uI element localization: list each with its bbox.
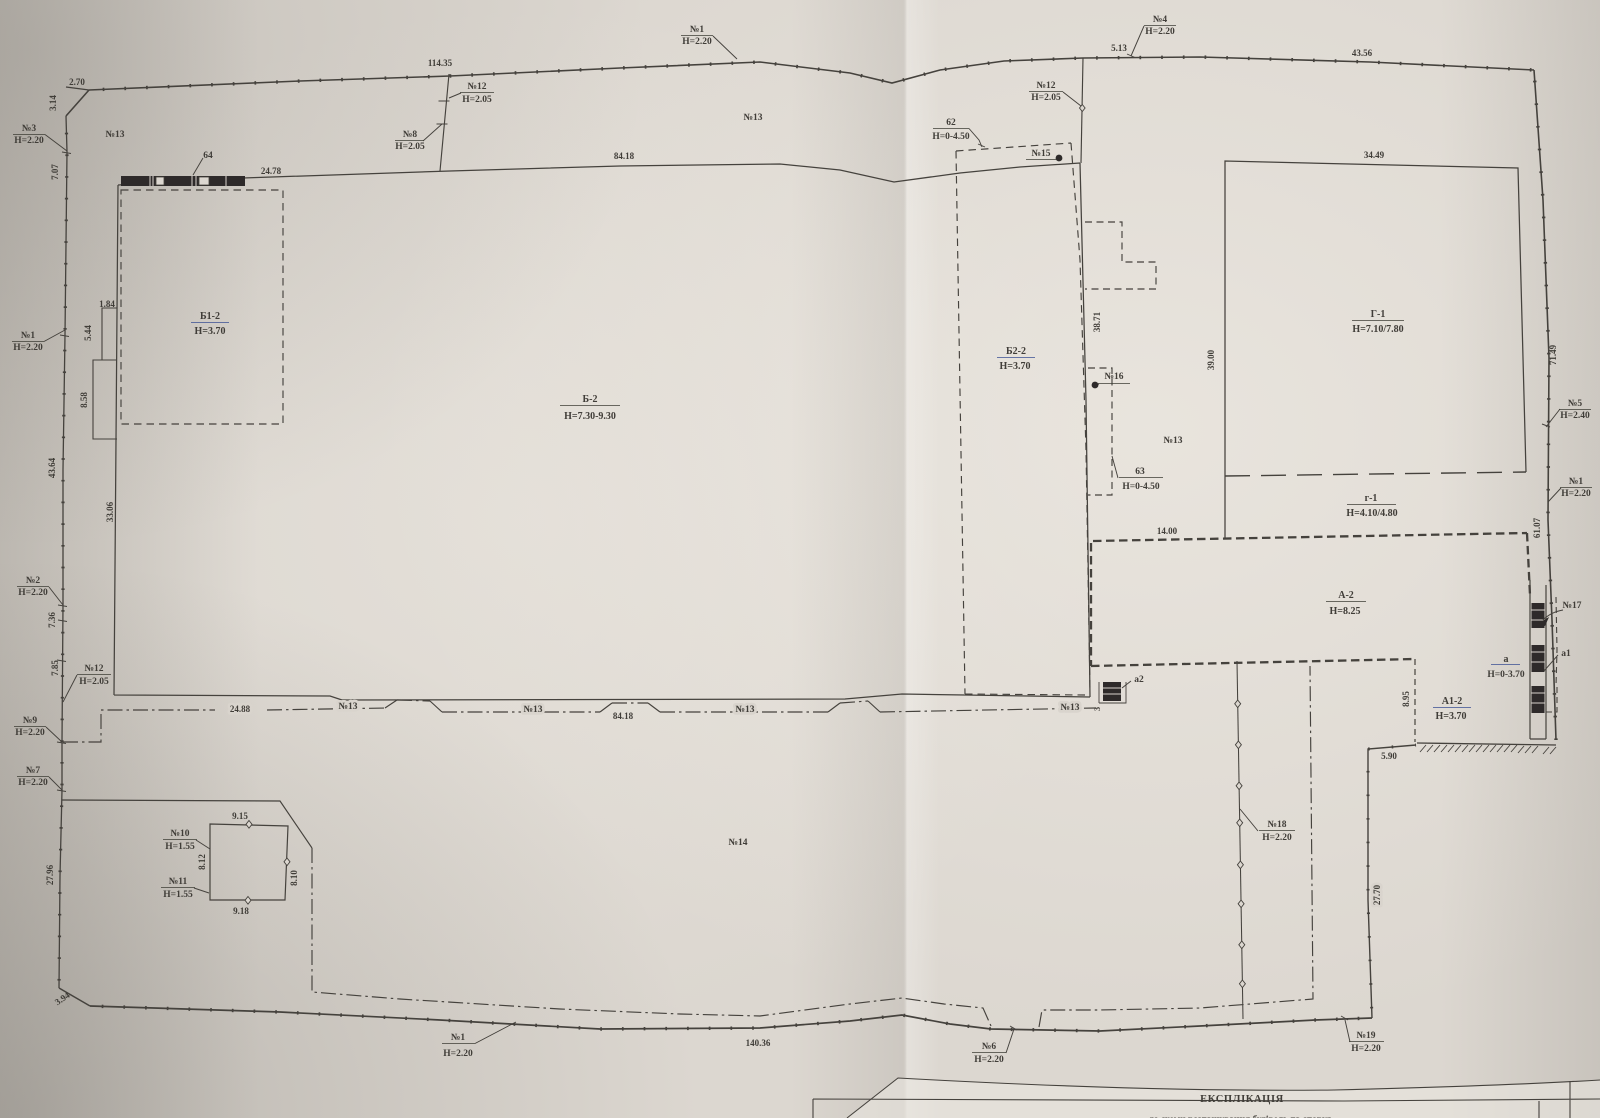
svg-text:№16: №16 <box>1104 372 1123 382</box>
svg-text:Н=2.05: Н=2.05 <box>1031 93 1061 103</box>
svg-text:№12: №12 <box>84 664 103 674</box>
svg-text:Н=2.05: Н=2.05 <box>79 677 109 687</box>
svg-text:Н=2.20: Н=2.20 <box>18 778 48 788</box>
svg-text:5.44: 5.44 <box>83 325 93 341</box>
svg-text:61.07: 61.07 <box>1532 517 1542 538</box>
svg-text:Н=3.70: Н=3.70 <box>1000 361 1031 372</box>
svg-text:Н=2.20: Н=2.20 <box>443 1049 473 1059</box>
svg-text:№1: №1 <box>1569 477 1584 487</box>
svg-text:А1-2: А1-2 <box>1442 696 1463 707</box>
svg-text:9.18: 9.18 <box>233 906 249 916</box>
svg-text:№4: №4 <box>1153 15 1168 25</box>
svg-text:5.13: 5.13 <box>1111 43 1127 53</box>
svg-text:№1: №1 <box>690 25 705 35</box>
svg-text:114.35: 114.35 <box>428 58 453 68</box>
svg-text:1.84: 1.84 <box>99 299 115 309</box>
svg-text:№10: №10 <box>170 829 189 839</box>
svg-text:№14: №14 <box>728 838 747 848</box>
svg-text:№13: №13 <box>1163 436 1182 446</box>
svg-text:Н=8.25: Н=8.25 <box>1330 606 1361 617</box>
svg-text:Б2-2: Б2-2 <box>1006 346 1026 357</box>
svg-text:84.18: 84.18 <box>613 711 634 721</box>
svg-text:7.07: 7.07 <box>50 164 60 180</box>
svg-text:43.56: 43.56 <box>1352 48 1373 58</box>
svg-text:Н=0-3.70: Н=0-3.70 <box>1487 670 1525 680</box>
svg-text:Н=2.20: Н=2.20 <box>18 588 48 598</box>
svg-text:А-2: А-2 <box>1338 590 1354 601</box>
svg-text:№13: №13 <box>735 705 754 715</box>
svg-text:а2: а2 <box>1134 675 1144 685</box>
svg-text:а1: а1 <box>1561 649 1571 659</box>
svg-text:Н=2.20: Н=2.20 <box>974 1055 1004 1065</box>
svg-text:43.64: 43.64 <box>47 457 57 478</box>
svg-text:38.71: 38.71 <box>1092 311 1102 332</box>
svg-text:Н=2.20: Н=2.20 <box>1351 1044 1381 1054</box>
svg-text:27.96: 27.96 <box>45 864 55 885</box>
svg-text:Б1-2: Б1-2 <box>200 311 220 322</box>
svg-text:Н=2.05: Н=2.05 <box>395 142 425 152</box>
svg-text:Н=2.40: Н=2.40 <box>1560 411 1590 421</box>
svg-text:ЕКСПЛІКАЦІЯ: ЕКСПЛІКАЦІЯ <box>1200 1094 1284 1105</box>
svg-text:№19: №19 <box>1356 1031 1375 1041</box>
svg-text:№12: №12 <box>1036 81 1055 91</box>
svg-text:№13: №13 <box>105 130 124 140</box>
svg-text:24.78: 24.78 <box>261 166 282 176</box>
svg-text:63: 63 <box>1135 467 1145 477</box>
svg-text:№13: №13 <box>523 705 542 715</box>
svg-text:Н=2.20: Н=2.20 <box>13 343 43 353</box>
svg-text:Н=2.20: Н=2.20 <box>1262 833 1292 843</box>
svg-text:71.49: 71.49 <box>1548 344 1558 365</box>
svg-text:№11: №11 <box>169 877 188 887</box>
svg-text:до схеми розташування будівель: до схеми розташування будівель та споруд <box>1149 1114 1331 1118</box>
svg-text:8.95: 8.95 <box>1401 691 1411 707</box>
svg-text:Н=2.20: Н=2.20 <box>14 136 44 146</box>
svg-text:Н=7.10/7.80: Н=7.10/7.80 <box>1352 324 1403 335</box>
svg-text:г-1: г-1 <box>1365 493 1378 504</box>
svg-text:Н=2.20: Н=2.20 <box>682 37 712 47</box>
svg-text:39.00: 39.00 <box>1206 349 1216 370</box>
svg-text:Н=1.55: Н=1.55 <box>165 842 195 852</box>
svg-text:Г-1: Г-1 <box>1371 309 1386 320</box>
svg-text:84.18: 84.18 <box>614 151 635 161</box>
svg-text:33.06: 33.06 <box>105 501 115 522</box>
svg-text:№8: №8 <box>403 130 418 140</box>
svg-text:№18: №18 <box>1267 820 1286 830</box>
svg-text:№1: №1 <box>451 1033 466 1043</box>
svg-text:8.58: 8.58 <box>79 392 89 408</box>
svg-text:8.10: 8.10 <box>289 870 299 886</box>
svg-text:№15: №15 <box>1031 149 1050 159</box>
svg-text:Н=1.55: Н=1.55 <box>163 890 193 900</box>
svg-text:Н=3.70: Н=3.70 <box>1436 711 1467 722</box>
svg-text:5.90: 5.90 <box>1381 751 1397 761</box>
svg-text:Н=2.20: Н=2.20 <box>1145 27 1175 37</box>
svg-text:3: 3 <box>1092 707 1102 711</box>
svg-text:62: 62 <box>946 118 956 128</box>
svg-text:Н=2.20: Н=2.20 <box>1561 489 1591 499</box>
svg-text:№13: №13 <box>338 702 357 712</box>
svg-text:2.70: 2.70 <box>69 77 85 87</box>
svg-text:14.00: 14.00 <box>1157 526 1178 536</box>
svg-text:№5: №5 <box>1568 399 1583 409</box>
svg-text:№13: №13 <box>743 113 762 123</box>
svg-text:Н=0-4.50: Н=0-4.50 <box>932 132 970 142</box>
svg-text:№3: №3 <box>22 124 37 134</box>
svg-text:Н=4.10/4.80: Н=4.10/4.80 <box>1346 508 1397 519</box>
svg-text:24.88: 24.88 <box>230 704 251 714</box>
svg-text:Н=2.05: Н=2.05 <box>462 95 492 105</box>
svg-text:Б-2: Б-2 <box>583 394 598 405</box>
svg-text:64: 64 <box>203 151 213 161</box>
svg-text:Н=3.70: Н=3.70 <box>195 326 226 337</box>
svg-text:3.14: 3.14 <box>48 95 58 111</box>
svg-text:а: а <box>1504 654 1509 665</box>
svg-text:№12: №12 <box>467 82 486 92</box>
svg-text:9.15: 9.15 <box>232 811 248 821</box>
svg-text:Н=2.20: Н=2.20 <box>15 728 45 738</box>
svg-text:№6: №6 <box>982 1042 997 1052</box>
svg-text:7.36: 7.36 <box>47 612 57 628</box>
svg-text:№7: №7 <box>26 766 41 776</box>
svg-text:№1: №1 <box>21 331 36 341</box>
svg-text:Н=0-4.50: Н=0-4.50 <box>1122 482 1160 492</box>
svg-text:27.70: 27.70 <box>1372 884 1382 905</box>
svg-text:7.85: 7.85 <box>50 660 60 676</box>
svg-text:8.12: 8.12 <box>197 854 207 870</box>
svg-text:№9: №9 <box>23 716 38 726</box>
svg-text:№17: №17 <box>1562 601 1581 611</box>
svg-text:34.49: 34.49 <box>1364 150 1385 160</box>
svg-text:Н=7.30-9.30: Н=7.30-9.30 <box>564 411 616 422</box>
svg-text:№2: №2 <box>26 576 41 586</box>
svg-text:№13: №13 <box>1060 703 1079 713</box>
svg-text:140.36: 140.36 <box>746 1038 771 1048</box>
